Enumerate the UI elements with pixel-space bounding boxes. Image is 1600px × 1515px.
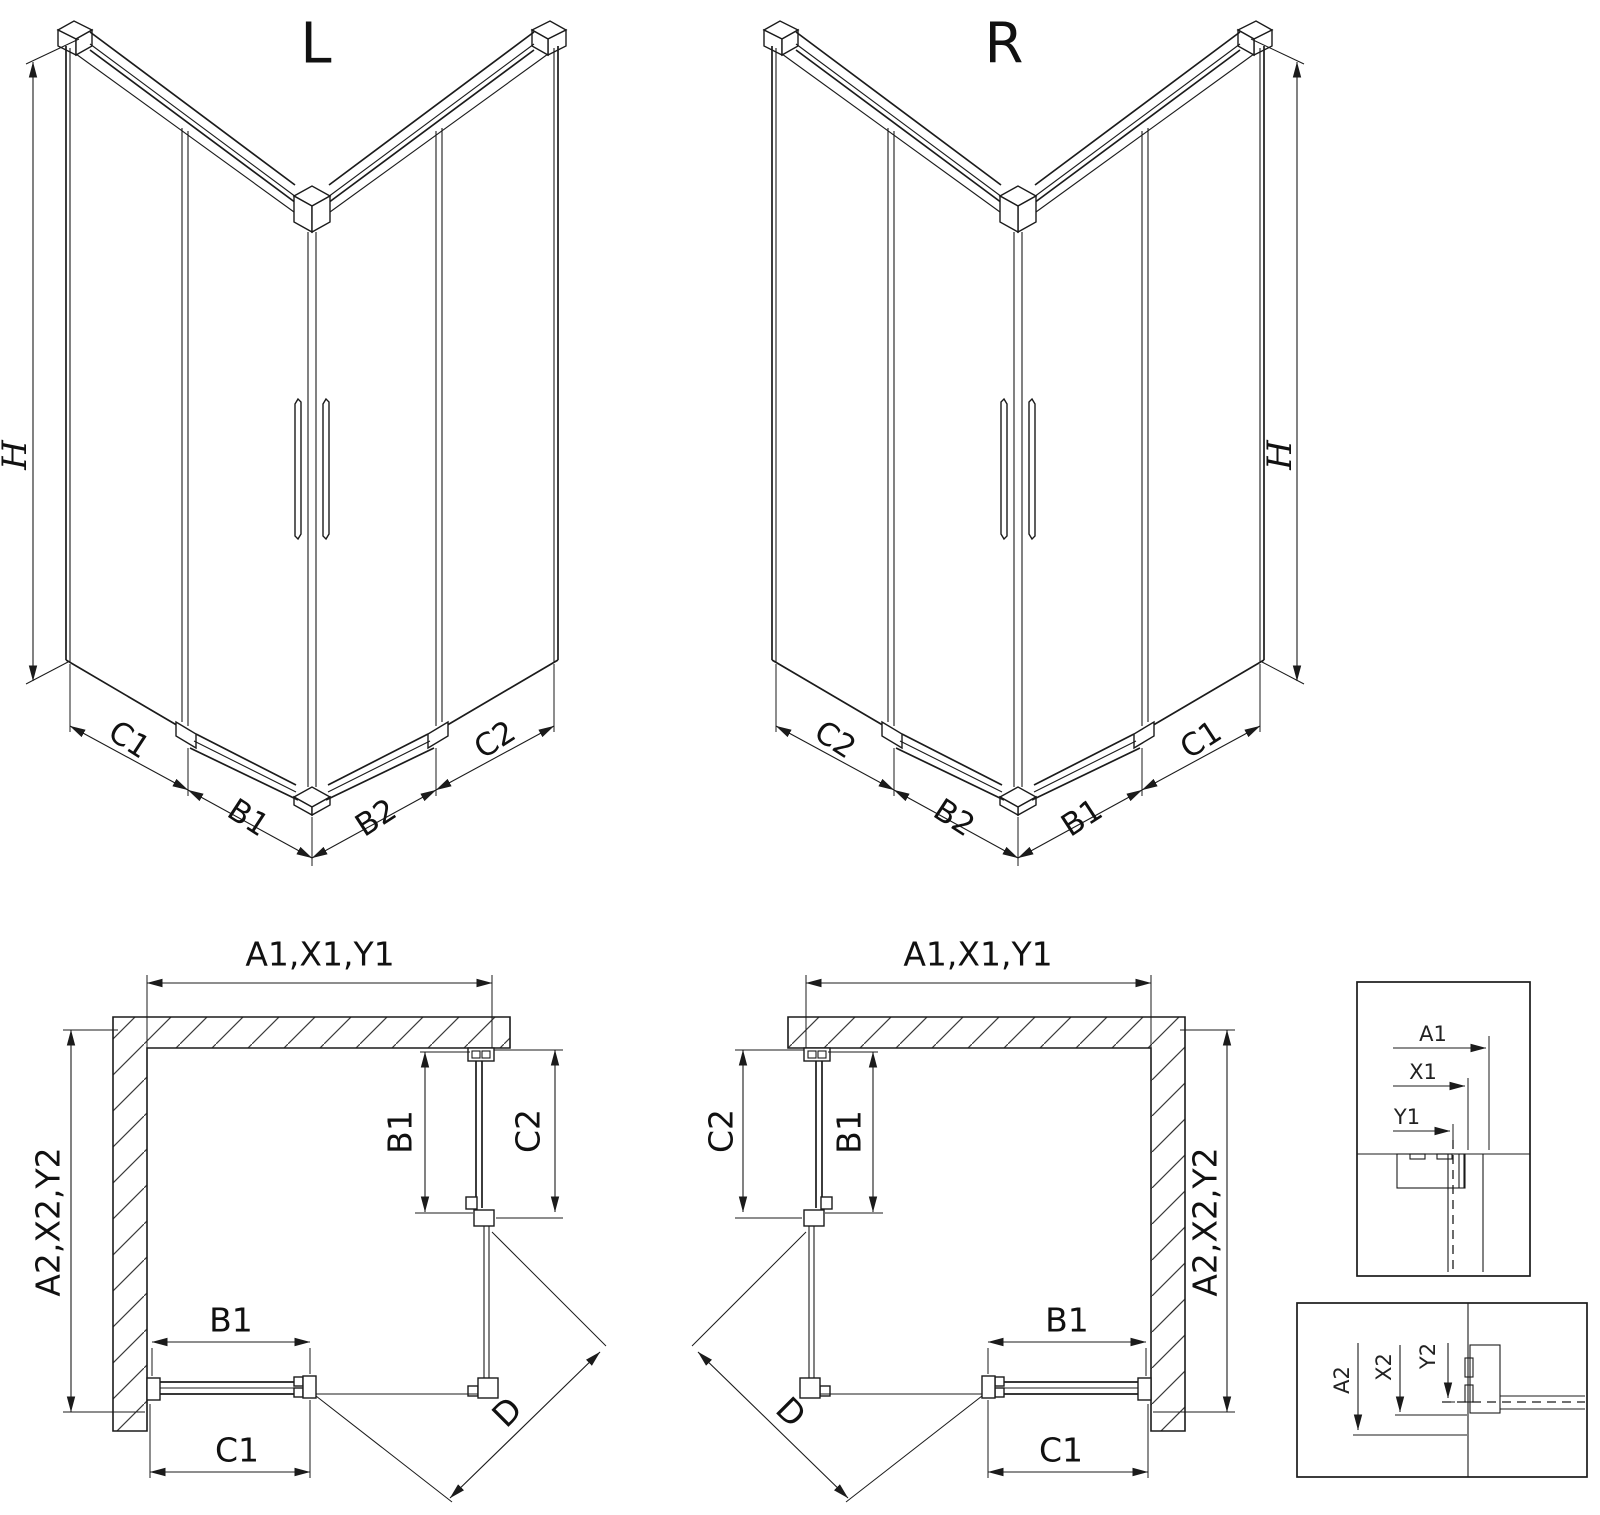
dim-label-c1-left: C1	[102, 714, 156, 767]
detail-view-widths: A1 X1 Y1	[1357, 982, 1530, 1276]
dim-label-c1-right: C1	[1174, 714, 1228, 767]
plan-view-right: A1,X1,Y1 A2,X2,Y2 B1 C2 B1 C1 D	[692, 935, 1235, 1503]
plan-right-fixed-bottom-label: C1	[1039, 1431, 1083, 1470]
detail-label-y1: Y1	[1393, 1105, 1420, 1129]
plan-view-left: A1,X1,Y1 A2,X2,Y2 B1 C2 B1 C1 D	[29, 935, 607, 1503]
dim-label-c2-right: C2	[808, 714, 862, 767]
dim-label-b2-left: B2	[349, 792, 403, 845]
plan-left-door-side-label: B1	[381, 1110, 420, 1154]
dim-label-b2-right: B2	[927, 792, 981, 845]
dim-label-b1-left: B1	[221, 792, 275, 845]
detail-label-y2: Y2	[1416, 1343, 1440, 1370]
iso-view-left: L H C1 B1 B2 C2	[0, 12, 566, 867]
plan-right-width-label: A1,X1,Y1	[903, 935, 1052, 974]
iso-view-right: R H C2 B2 B1 C1	[764, 12, 1304, 867]
plan-right-depth-label: A2,X2,Y2	[1186, 1147, 1225, 1296]
height-dim-label-left: H	[0, 439, 35, 471]
plan-right-door-side-label: B1	[830, 1110, 869, 1154]
plan-left-depth-label: A2,X2,Y2	[29, 1147, 68, 1296]
dim-label-b1-right: B1	[1055, 792, 1109, 845]
variant-label-left: L	[300, 12, 331, 77]
height-dim-label-right: H	[1260, 439, 1300, 471]
plan-right-door-bottom-label: B1	[1045, 1301, 1089, 1340]
plan-left-width-label: A1,X1,Y1	[245, 935, 394, 974]
variant-label-right: R	[985, 12, 1024, 77]
plan-right-fixed-side-label: C2	[702, 1109, 741, 1153]
plan-left-door-bottom-label: B1	[209, 1301, 253, 1340]
detail-label-x2: X2	[1372, 1353, 1396, 1381]
drawing-canvas: L H C1 B1 B2 C2 R H C2 B2 B1 C1 A1,X1,Y1…	[0, 0, 1600, 1515]
wall-section-left-plan	[113, 1017, 510, 1431]
dim-label-c2-left: C2	[468, 714, 522, 767]
detail-label-x1: X1	[1409, 1060, 1437, 1084]
detail-label-a1: A1	[1419, 1022, 1447, 1046]
technical-drawing-page: L H C1 B1 B2 C2 R H C2 B2 B1 C1 A1,X1,Y1…	[0, 0, 1600, 1515]
plan-left-fixed-side-label: C2	[509, 1109, 548, 1153]
detail-view-depths: A2 X2 Y2	[1297, 1303, 1587, 1477]
wall-section-right-plan	[788, 1017, 1185, 1431]
detail-label-a2: A2	[1330, 1366, 1354, 1394]
plan-left-fixed-bottom-label: C1	[215, 1431, 259, 1470]
